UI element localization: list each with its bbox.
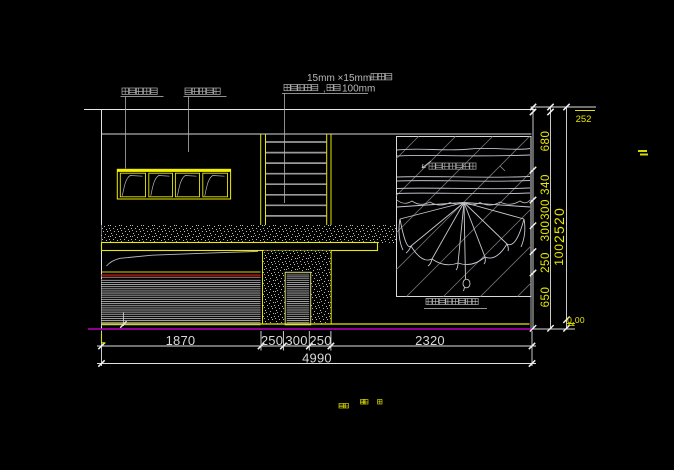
svg-text:2520: 2520 (551, 207, 567, 243)
svg-text:300: 300 (285, 333, 307, 348)
svg-text:2320: 2320 (415, 333, 445, 348)
svg-text:4990: 4990 (302, 351, 332, 366)
svg-text:340: 340 (540, 174, 552, 195)
svg-text:15mm ×15mm: 15mm ×15mm (307, 73, 371, 84)
svg-text:252: 252 (576, 114, 592, 125)
svg-text:250: 250 (540, 252, 552, 273)
svg-text:680: 680 (540, 131, 552, 152)
svg-text:650: 650 (540, 287, 552, 308)
svg-text:250: 250 (309, 333, 331, 348)
svg-text:,: , (323, 84, 326, 94)
svg-text:100: 100 (552, 243, 566, 265)
svg-text:100mm: 100mm (342, 84, 375, 95)
svg-text:1870: 1870 (166, 333, 196, 348)
svg-text:250: 250 (261, 333, 283, 348)
